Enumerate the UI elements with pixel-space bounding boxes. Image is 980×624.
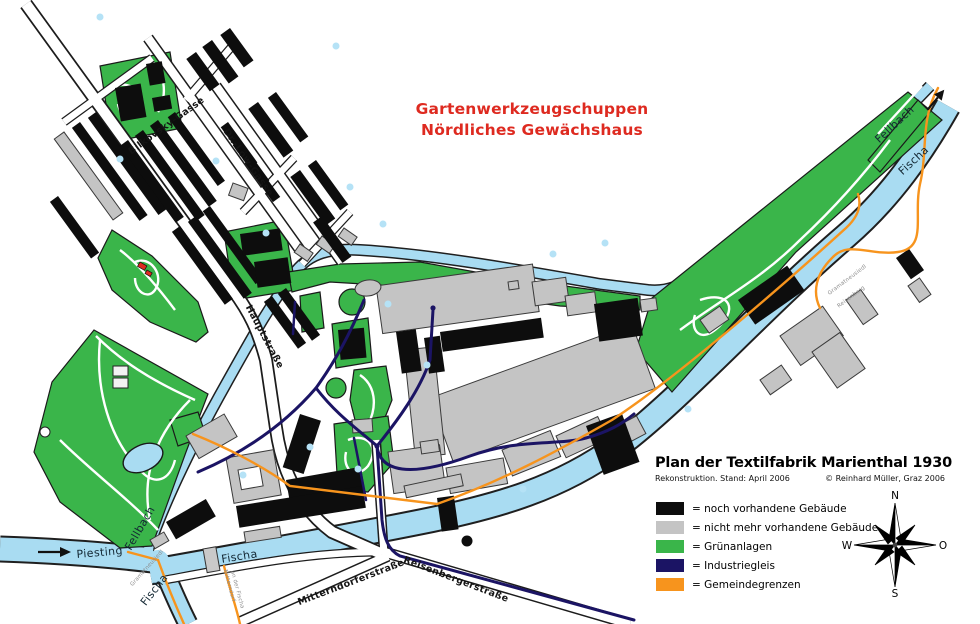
legend-swatch-3 bbox=[656, 559, 684, 572]
compass-rose: N S W O bbox=[840, 489, 950, 599]
red-annotation-line1: Gartenwerkzeugschuppen bbox=[398, 99, 666, 120]
compass-hub bbox=[893, 543, 898, 548]
legend-label-0: = noch vorhandene Gebäude bbox=[692, 503, 847, 515]
legend-label-3: = Industriegleis bbox=[692, 560, 775, 572]
street-label-mitterndorferstrasse: Mitterndorferstraße bbox=[296, 557, 406, 608]
compass-label-s: S bbox=[892, 588, 899, 599]
map-subtitle-left: Rekonstruktion. Stand: April 2006 bbox=[655, 474, 790, 483]
legend-swatch-4 bbox=[656, 578, 684, 591]
title-block: Plan der Textilfabrik Marienthal 1930 Re… bbox=[655, 455, 945, 483]
green-blob-4 bbox=[326, 378, 346, 398]
legend-swatch-2 bbox=[656, 540, 684, 553]
rail-buffer-dot bbox=[462, 536, 473, 547]
legend-swatch-0 bbox=[656, 502, 684, 515]
legend-label-2: = Grünanlagen bbox=[692, 541, 772, 553]
compass-label-w: W bbox=[842, 540, 853, 552]
map-page: Bilkovsky-Gasse Dr.-Löw-Gasse Hauptstraß… bbox=[0, 0, 980, 624]
red-annotation-line2: Nördliches Gewächshaus bbox=[398, 120, 666, 141]
legend-label-4: = Gemeindegrenzen bbox=[692, 579, 801, 591]
path-node-1 bbox=[40, 427, 50, 437]
legend-swatch-1 bbox=[656, 521, 684, 534]
map-subtitle-right: © Reinhard Müller, Graz 2006 bbox=[825, 474, 945, 483]
compass-label-o: O bbox=[939, 540, 947, 552]
compass-label-n: N bbox=[891, 490, 899, 502]
red-annotation: Gartenwerkzeugschuppen Nördliches Gewäch… bbox=[398, 99, 666, 142]
rail-end-dot bbox=[430, 305, 435, 310]
rail-junction-dot bbox=[374, 443, 379, 448]
map-title: Plan der Textilfabrik Marienthal 1930 bbox=[655, 455, 945, 471]
